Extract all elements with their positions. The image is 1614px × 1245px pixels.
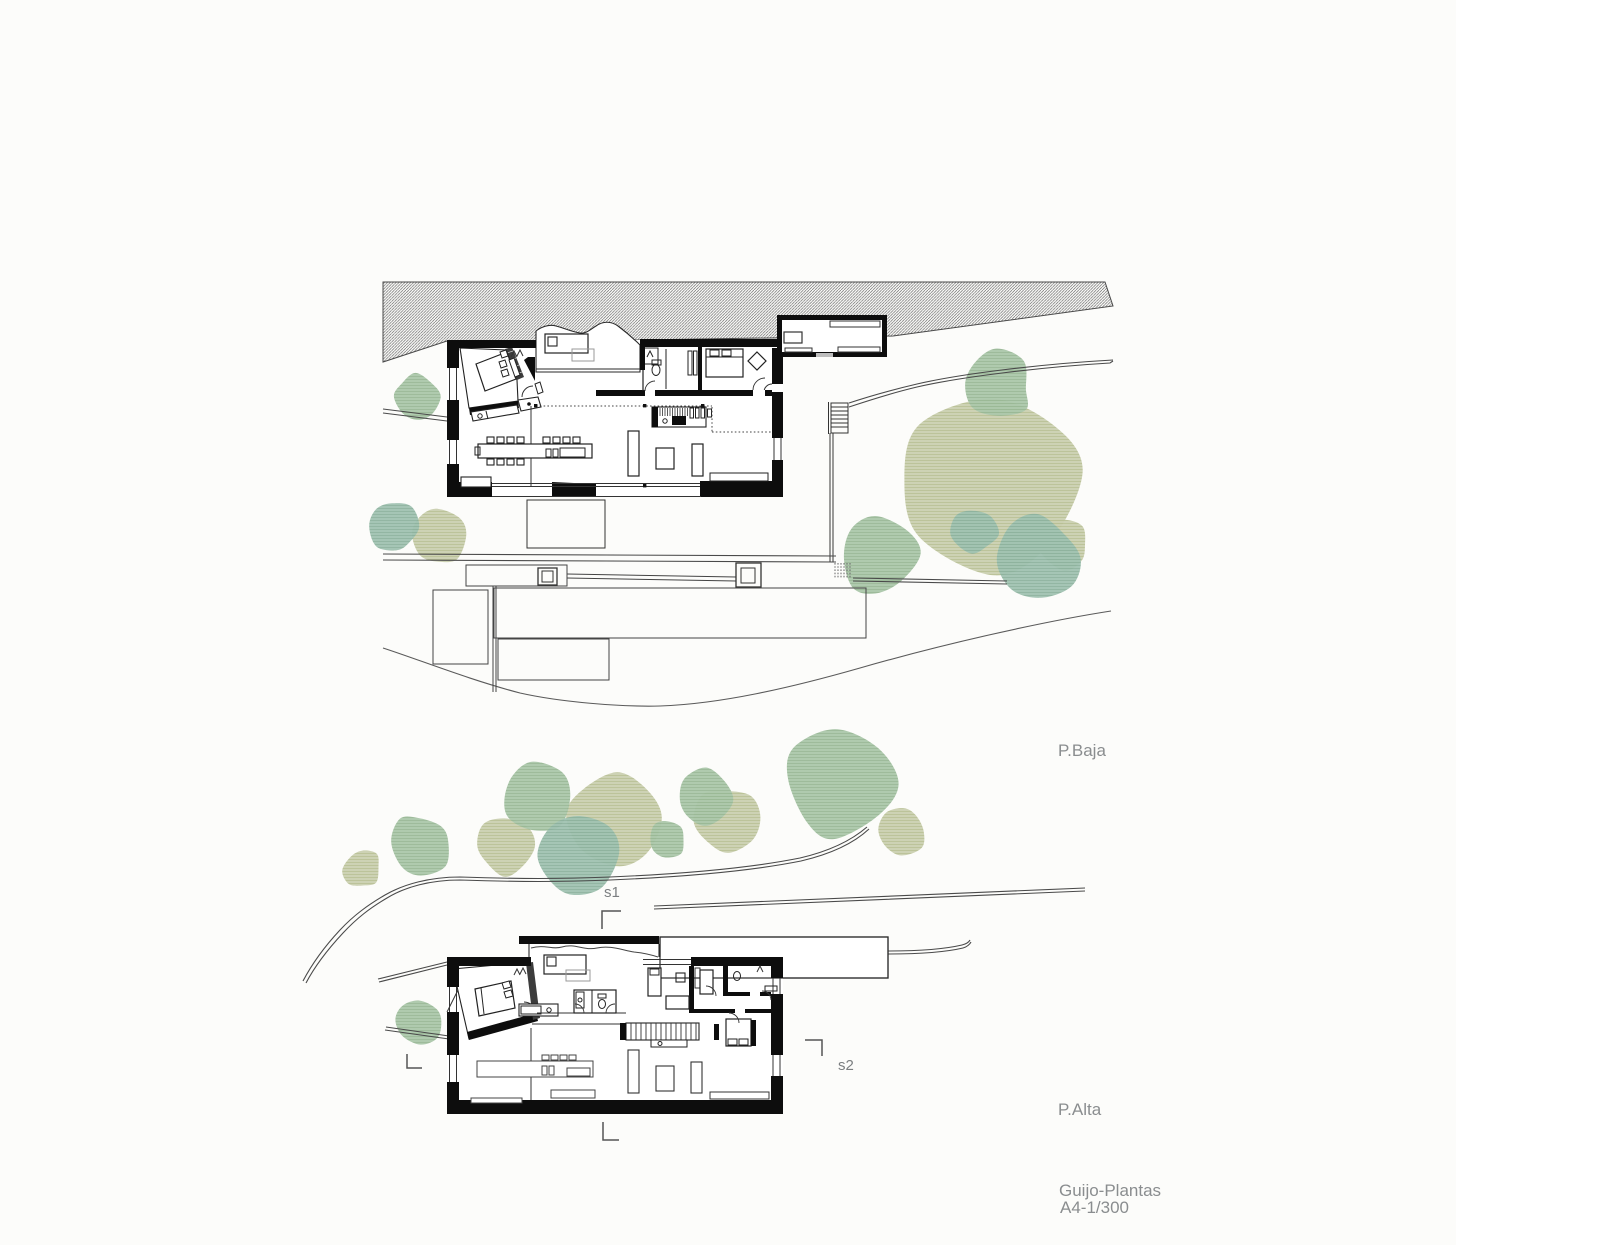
svg-text:s2: s2 [838, 1057, 854, 1074]
svg-text:P.Baja: P.Baja [1058, 741, 1106, 760]
svg-text:A4-1/300: A4-1/300 [1060, 1198, 1129, 1217]
svg-text:s1: s1 [604, 884, 620, 901]
svg-text:P.Alta: P.Alta [1058, 1100, 1102, 1119]
